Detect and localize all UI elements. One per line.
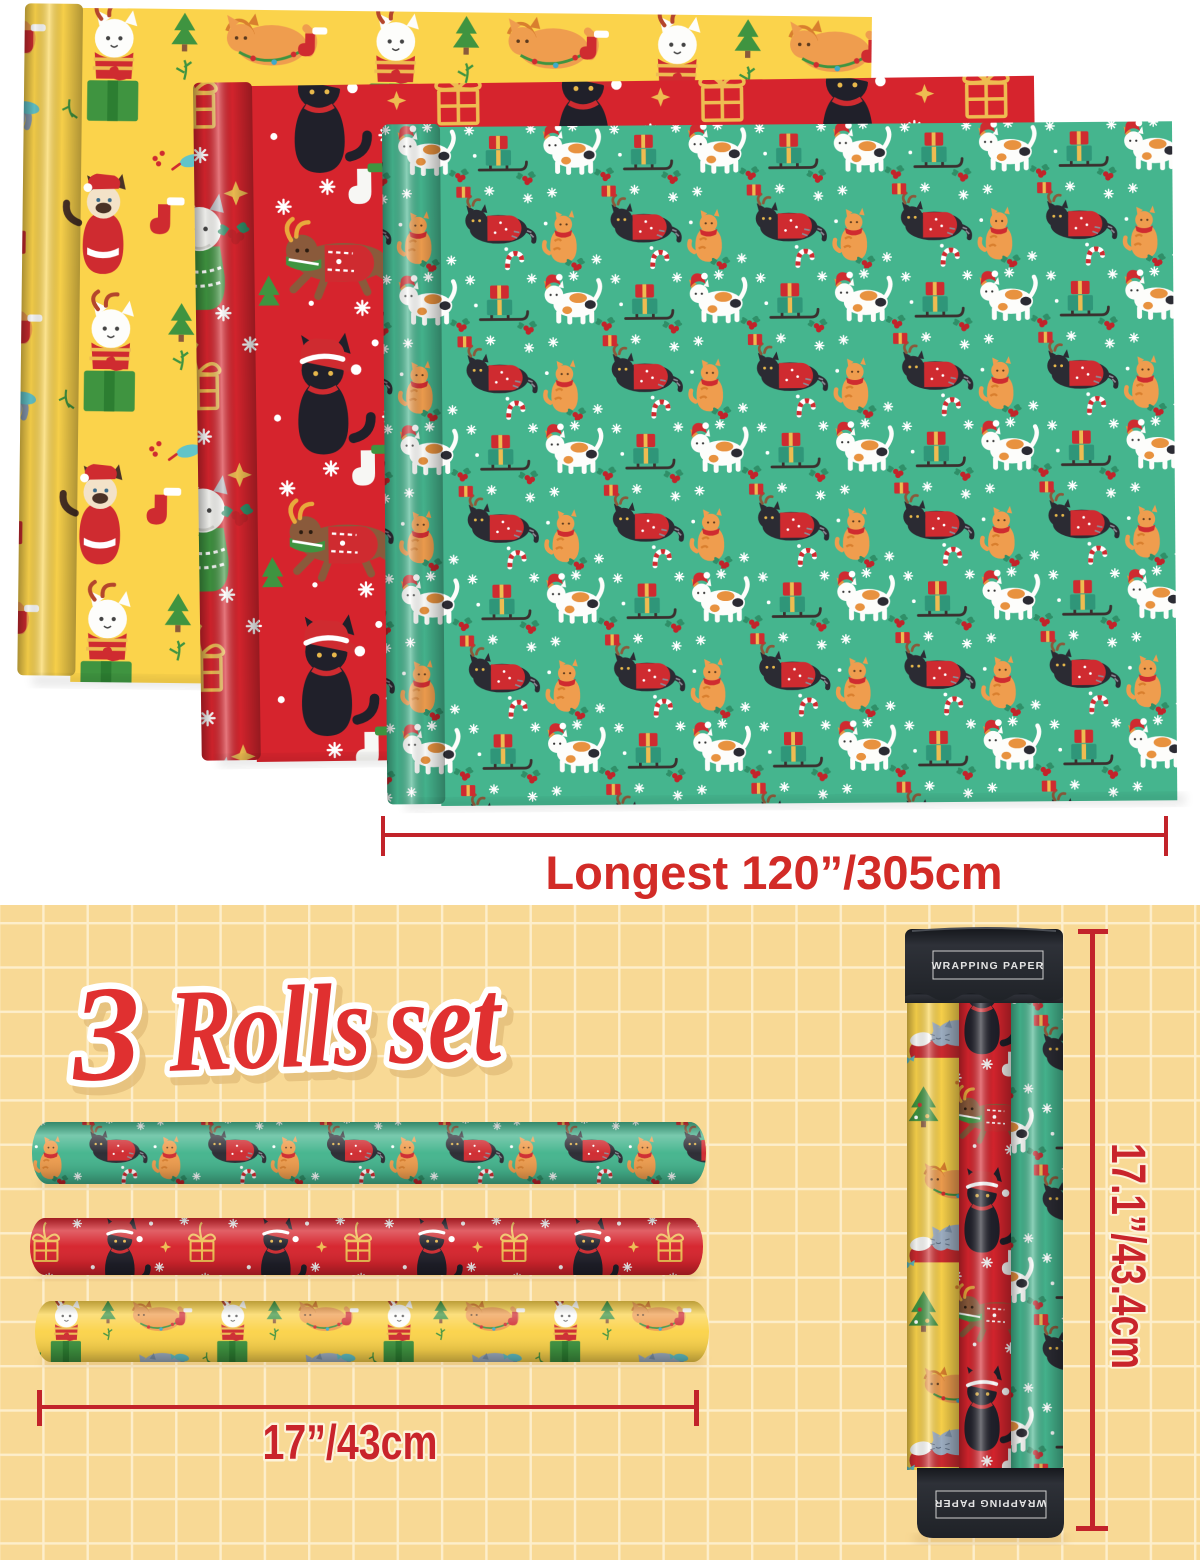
svg-text:WRAPPING PAPER: WRAPPING PAPER	[934, 1497, 1047, 1509]
svg-text:set: set	[385, 954, 505, 1089]
svg-text:17.1”/43.4cm: 17.1”/43.4cm	[1101, 1143, 1154, 1369]
svg-text:Longest 120”/305cm: Longest 120”/305cm	[545, 846, 1002, 899]
svg-text:3: 3	[68, 958, 143, 1110]
svg-text:Rolls: Rolls	[165, 959, 372, 1097]
svg-text:WRAPPING PAPER: WRAPPING PAPER	[932, 960, 1045, 972]
svg-text:17”/43cm: 17”/43cm	[263, 1416, 438, 1470]
